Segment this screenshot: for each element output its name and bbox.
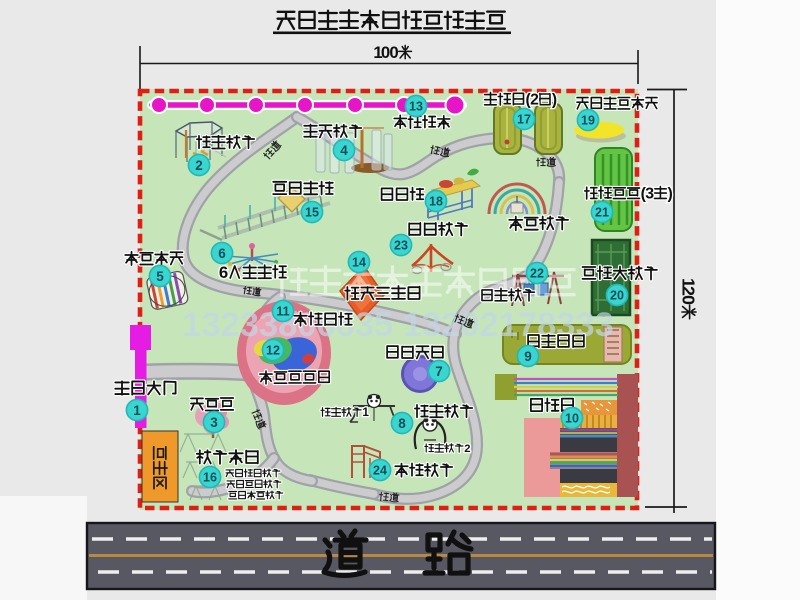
svg-text:10: 10 [565,412,579,426]
svg-text:21: 21 [595,206,609,220]
svg-text:8: 8 [398,416,406,431]
svg-text:24: 24 [373,464,387,478]
svg-text:3: 3 [645,186,654,203]
svg-text:18: 18 [429,195,443,209]
svg-text:1: 1 [133,403,141,418]
svg-text:19: 19 [581,114,595,128]
svg-text:12: 12 [266,344,280,358]
svg-text:22: 22 [530,267,544,281]
svg-text:2: 2 [530,92,539,109]
svg-text:0: 0 [389,43,398,62]
svg-text:6: 6 [219,263,228,282]
svg-text:14: 14 [352,256,366,270]
svg-text:20: 20 [610,289,624,303]
svg-text:11: 11 [276,305,289,319]
svg-text:9: 9 [524,349,532,364]
svg-text:7: 7 [435,364,443,379]
svg-text:17: 17 [517,113,531,127]
svg-text:15: 15 [305,206,319,220]
svg-text:): ) [552,92,557,109]
svg-text:16: 16 [203,471,217,485]
svg-text:2: 2 [464,443,470,455]
svg-text:13: 13 [409,100,423,114]
svg-text:2: 2 [195,158,203,173]
svg-text:23: 23 [394,239,408,253]
svg-text:3: 3 [210,415,218,430]
svg-text:6: 6 [218,246,226,261]
svg-text:1: 1 [362,405,369,419]
svg-text:4: 4 [340,143,348,158]
svg-text:0: 0 [679,295,699,305]
svg-text:): ) [668,186,673,203]
svg-text:5: 5 [156,269,164,284]
